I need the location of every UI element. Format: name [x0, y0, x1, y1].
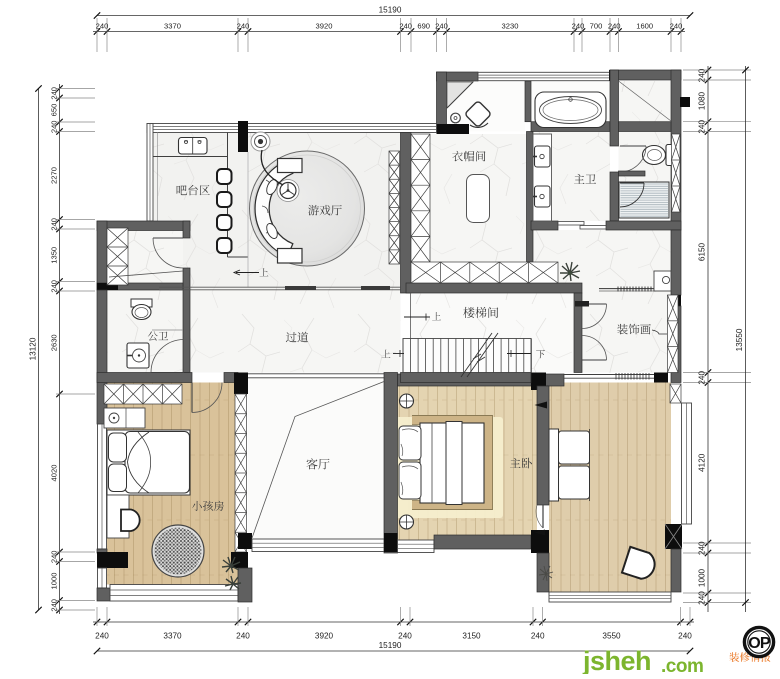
- svg-text:13120: 13120: [29, 337, 38, 360]
- svg-text:240: 240: [698, 371, 707, 385]
- svg-text:6150: 6150: [698, 242, 707, 261]
- svg-text:240: 240: [435, 21, 448, 30]
- svg-text:1000: 1000: [50, 573, 59, 590]
- svg-text:240: 240: [236, 632, 250, 641]
- svg-text:240: 240: [608, 21, 621, 30]
- svg-text:700: 700: [590, 21, 603, 30]
- svg-text:4020: 4020: [50, 465, 59, 482]
- svg-text:3370: 3370: [163, 632, 182, 641]
- svg-text:690: 690: [417, 21, 430, 30]
- svg-text:4120: 4120: [698, 453, 707, 472]
- svg-text:240: 240: [50, 218, 59, 231]
- svg-text:240: 240: [50, 599, 59, 612]
- svg-text:15190: 15190: [379, 5, 402, 14]
- svg-text:240: 240: [399, 21, 412, 30]
- svg-text:240: 240: [572, 21, 585, 30]
- svg-text:.com: .com: [661, 656, 703, 674]
- svg-text:240: 240: [50, 87, 59, 100]
- svg-text:650: 650: [50, 104, 59, 117]
- svg-text:240: 240: [698, 68, 707, 82]
- svg-text:240: 240: [678, 632, 692, 641]
- svg-text:240: 240: [50, 280, 59, 293]
- svg-text:2630: 2630: [50, 334, 59, 351]
- svg-text:240: 240: [96, 21, 109, 30]
- svg-text:240: 240: [670, 21, 683, 30]
- svg-text:15190: 15190: [379, 641, 402, 650]
- svg-text:jsheh: jsheh: [582, 646, 651, 674]
- svg-text:1080: 1080: [698, 91, 707, 110]
- svg-text:240: 240: [698, 541, 707, 555]
- svg-text:OP: OP: [748, 635, 771, 652]
- svg-text:3150: 3150: [462, 632, 481, 641]
- svg-text:3920: 3920: [315, 632, 334, 641]
- svg-text:240: 240: [50, 120, 59, 133]
- svg-text:1350: 1350: [50, 247, 59, 264]
- svg-text:240: 240: [698, 120, 707, 134]
- svg-text:240: 240: [95, 632, 109, 641]
- svg-text:13550: 13550: [735, 328, 744, 351]
- svg-text:240: 240: [698, 591, 707, 605]
- svg-text:1600: 1600: [636, 21, 653, 30]
- svg-text:240: 240: [237, 21, 250, 30]
- svg-text:240: 240: [531, 632, 545, 641]
- svg-text:3920: 3920: [316, 21, 333, 30]
- svg-text:2270: 2270: [50, 167, 59, 184]
- svg-text:1000: 1000: [698, 568, 707, 587]
- svg-text:3370: 3370: [164, 21, 181, 30]
- svg-text:3550: 3550: [602, 632, 621, 641]
- svg-text:240: 240: [50, 550, 59, 563]
- svg-text:240: 240: [398, 632, 412, 641]
- svg-text:3230: 3230: [502, 21, 519, 30]
